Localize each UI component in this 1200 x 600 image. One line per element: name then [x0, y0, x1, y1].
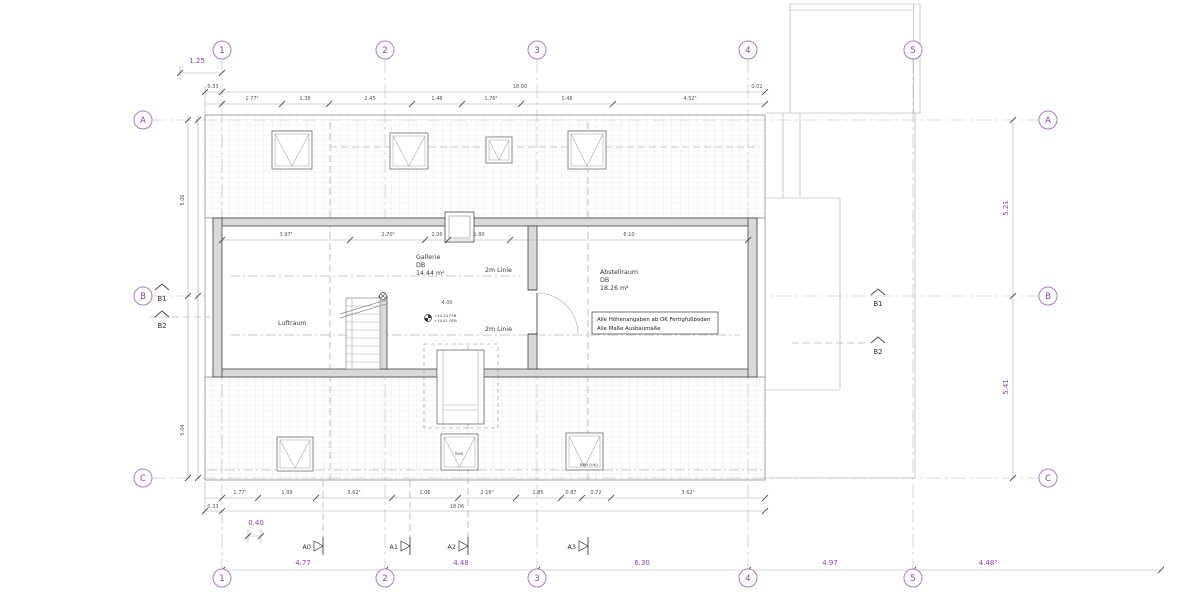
room-label-abstellraum: Abstellraum — [600, 269, 638, 276]
room-label-gallerie-sub: DB — [416, 262, 425, 269]
svg-text:5: 5 — [910, 46, 915, 56]
svg-text:3: 3 — [534, 46, 539, 56]
dim-top-seg: 2.45 — [364, 96, 375, 102]
grid-bubble-right-b: B — [1039, 287, 1057, 305]
dim-5-41: 5.41 — [1002, 379, 1010, 395]
dim-bot-seg: 0.72 — [590, 490, 601, 496]
dim-row-bottom: 1.77⁵ 1.99 3.62⁵ 1.06 2.16⁵ 1.85 0.87 0.… — [202, 482, 768, 514]
dim-top-seg: 1.77⁵ — [245, 96, 258, 102]
label-2m-linie-upper: 2m Linie — [485, 267, 512, 274]
svg-text:3: 3 — [534, 574, 539, 584]
section-marker-b1-right: B1 — [873, 300, 882, 308]
room-label-abstellraum-area: 18.26 m² — [600, 285, 629, 292]
room-label-luftraum: Luftraum — [278, 320, 307, 327]
dim-int: 2.70⁵ — [381, 232, 394, 238]
dim-6-30: 6.30 — [634, 559, 650, 567]
dim-bot-seg: 2.16⁵ — [480, 490, 493, 496]
room-label-abstellraum-sub: DB — [600, 277, 609, 284]
section-markers-right: B1 B2 — [792, 289, 885, 356]
svg-text:A0: A0 — [302, 543, 311, 551]
section-marker-b2-left: B2 — [157, 322, 166, 330]
dim-top-right: 0.02 — [751, 84, 762, 90]
dim-int-mid: 4.00 — [441, 300, 452, 306]
neighbour-building-outline — [790, 4, 920, 113]
dim-col-purple-right: 5.21 5.41 — [1002, 117, 1016, 481]
chimney — [445, 212, 474, 242]
dim-top-seg: 1.38 — [299, 96, 310, 102]
dim-int: 6.10 — [623, 232, 634, 238]
skylight-window — [568, 131, 606, 169]
skylight-window-brh: BRH 0.90 — [566, 433, 603, 470]
dim-left-lower: 5.04 — [180, 424, 186, 435]
grid-bubble-left-b: B — [134, 287, 152, 305]
brh-label: BRH 0.90 — [580, 462, 598, 467]
dim-bot-seg: 1.99 — [281, 490, 292, 496]
dim-4-97: 4.97 — [822, 559, 838, 567]
skylight-window — [486, 137, 512, 163]
svg-text:1: 1 — [219, 574, 224, 584]
grid-bubble-top-2: 2 — [376, 41, 394, 59]
room-label-gallerie: Gallerie — [416, 254, 440, 261]
dim-bot-seg: 3.62⁵ — [681, 490, 694, 496]
dim-0-40: 0.40 — [248, 519, 264, 527]
svg-text:A: A — [140, 116, 146, 126]
dim-top-seg: 1.48 — [431, 96, 442, 102]
dim-top-seg: 4.52⁵ — [683, 96, 696, 102]
dim-purple-top-left: 1.25 — [177, 57, 225, 80]
grid-bubble-bottom-1: 1 — [213, 569, 231, 587]
section-flag-a3: A3 — [567, 537, 588, 555]
svg-text:2: 2 — [382, 46, 387, 56]
svg-text:A1: A1 — [389, 543, 398, 551]
skylight-window — [277, 437, 313, 471]
svg-text:1: 1 — [219, 46, 224, 56]
svg-text:C: C — [140, 474, 146, 484]
level-rfb: +10.41 RFB — [434, 318, 457, 323]
svg-text:A: A — [1045, 116, 1051, 126]
annex-outline — [765, 113, 921, 478]
dim-row-top: 0.33 18.00 0.02 1.77⁵ 1.38 2.45 1.48 1.7… — [202, 84, 768, 115]
section-markers-left: B1 B2 — [150, 284, 210, 330]
dim-bot-total: 18.06 — [450, 504, 464, 510]
dim-top-left: 0.33 — [207, 84, 218, 90]
dim-top-seg: 1.48 — [561, 96, 572, 102]
dim-int: 1.80 — [473, 232, 484, 238]
stairs — [340, 298, 386, 369]
svg-text:4: 4 — [745, 574, 750, 584]
level-marker: +10.54 FFB +10.41 RFB — [425, 313, 458, 323]
svg-text:2: 2 — [382, 574, 387, 584]
grid-bubble-bottom-5: 5 — [904, 569, 922, 587]
floorplan-drawing: RWA BRH 0.90 Gallerie DB 14.44 m² Abstel… — [0, 0, 1200, 600]
dim-int: 1.06 — [431, 232, 442, 238]
dim-top-seg: 1.76⁵ — [484, 96, 497, 102]
interior-band — [205, 218, 765, 377]
dim-4-48: 4.48 — [453, 559, 469, 567]
note-box: Alle Höhenangaben ab OK Fertigfußboden A… — [592, 312, 718, 334]
note-line2: Alle Maße Ausbaumaße — [597, 326, 661, 332]
grid-bubble-bottom-3: 3 — [528, 569, 546, 587]
grid-bubble-top-3: 3 — [528, 41, 546, 59]
section-flag-a0: A0 — [302, 537, 323, 555]
dim-bot-seg: 1.85 — [532, 490, 543, 496]
dim-1-25: 1.25 — [189, 57, 205, 65]
dim-bot-seg: 3.62⁵ — [347, 490, 360, 496]
skylight-window-rwa: RWA — [441, 434, 478, 470]
dim-purple-bottom-left: 0.40 — [245, 519, 264, 543]
dim-5-21: 5.21 — [1002, 200, 1010, 216]
room-label-gallerie-area: 14.44 m² — [416, 270, 445, 277]
note-line1: Alle Höhenangaben ab OK Fertigfußboden — [597, 317, 710, 323]
section-flag-a1: A1 — [389, 537, 410, 555]
dim-left-upper: 5.06 — [180, 194, 186, 205]
section-marker-b1-left: B1 — [157, 295, 166, 303]
grid-bubble-bottom-4: 4 — [739, 569, 757, 587]
section-flag-a2: A2 — [447, 537, 468, 555]
label-2m-linie-lower: 2m Linie — [485, 326, 512, 333]
skylight-window — [272, 131, 312, 169]
dim-bot-seg: 0.87 — [565, 490, 576, 496]
grid-bubble-right-a: A — [1039, 111, 1057, 129]
svg-text:A3: A3 — [567, 543, 576, 551]
dim-4-48-5: 4.48⁵ — [979, 559, 998, 567]
skylight-window — [390, 133, 428, 169]
grid-bubble-bottom-2: 2 — [376, 569, 394, 587]
svg-text:4: 4 — [745, 46, 750, 56]
grid-bubble-top-5: 5 — [904, 41, 922, 59]
dim-bot-left: 0.33 — [207, 504, 218, 510]
svg-text:B: B — [140, 292, 146, 302]
rwa-label: RWA — [455, 452, 464, 456]
dim-int: 3.97⁵ — [279, 232, 292, 238]
dim-bot-seg: 1.77⁵ — [233, 490, 246, 496]
grid-bubble-right-c: C — [1039, 469, 1057, 487]
section-flags-bottom: A0 A1 A2 A3 — [302, 537, 588, 555]
dim-row-purple-bottom: 4.77 4.48 6.30 4.97 4.48⁵ — [219, 559, 1164, 573]
grid-bubble-left-a: A — [134, 111, 152, 129]
svg-text:5: 5 — [910, 574, 915, 584]
dim-bot-seg: 1.06 — [419, 490, 430, 496]
svg-text:B: B — [1045, 292, 1051, 302]
grid-bubble-left-c: C — [134, 469, 152, 487]
dim-top-total: 18.00 — [513, 84, 527, 90]
survey-point-icon — [380, 293, 387, 300]
svg-text:A2: A2 — [447, 543, 456, 551]
dim-col-left: 5.06 5.04 — [180, 115, 201, 481]
dim-4-77: 4.77 — [295, 559, 311, 567]
section-marker-b2-right: B2 — [873, 348, 882, 356]
svg-text:C: C — [1045, 474, 1051, 484]
grid-bubble-top-1: 1 — [213, 41, 231, 59]
grid-bubble-top-4: 4 — [739, 41, 757, 59]
